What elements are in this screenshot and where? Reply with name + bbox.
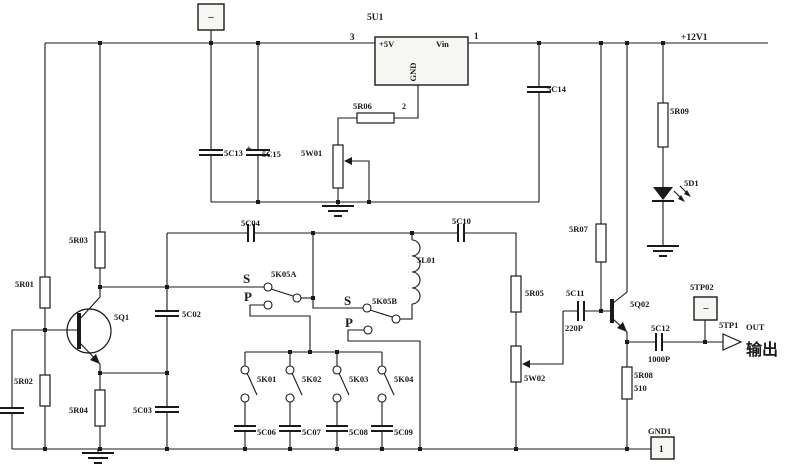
junction-dot	[599, 41, 603, 45]
junction-dot	[625, 41, 629, 45]
cap-5C03	[155, 373, 179, 449]
junction-dot	[288, 447, 292, 451]
label-5k05b-s: S	[344, 293, 351, 308]
junction-dot	[703, 340, 707, 344]
transistor-5Q1	[45, 287, 111, 373]
label-5r04: 5R04	[69, 405, 89, 415]
tp02-minus: −	[703, 303, 709, 315]
junction-dot	[367, 200, 371, 204]
junction-dot	[418, 447, 422, 451]
label-5k05a: 5K05A	[271, 269, 297, 279]
resistor-5R09	[658, 43, 668, 187]
label-shuchu: 输出	[746, 340, 778, 359]
junction-dot	[43, 447, 47, 451]
label-5c10: 5C10	[452, 216, 471, 226]
label-pin2: 2	[402, 102, 406, 111]
label-5u1: 5U1	[367, 13, 384, 23]
schematic-canvas: 5U131+5VVinGND25R065W015C13+5C155C14+12V…	[0, 0, 785, 471]
label-5c06: 5C06	[257, 427, 276, 437]
label-gnd1-pin: 1	[659, 444, 664, 454]
junction-dot	[209, 41, 213, 45]
label-pin3: 3	[350, 32, 355, 42]
regulator-5U1	[338, 37, 468, 145]
junction-dot	[165, 447, 169, 451]
junction-dot	[308, 350, 312, 354]
resistor-5R04	[95, 373, 105, 449]
label-5k01: 5K01	[257, 374, 276, 384]
schematic-page: 5U131+5VVinGND25R065W015C13+5C155C14+12V…	[0, 0, 785, 471]
resistor-5R01	[40, 43, 50, 375]
label-5c15: 5C15	[262, 149, 281, 159]
junction-dot	[625, 340, 629, 344]
led-5D1	[652, 186, 691, 242]
junction-dot	[98, 41, 102, 45]
label-out: OUT	[746, 322, 765, 332]
label-5l01: 5L01	[417, 255, 435, 265]
label-5r07: 5R07	[569, 224, 589, 234]
junction-dot	[335, 350, 339, 354]
label-5r01: 5R01	[15, 279, 34, 289]
label-5c09: 5C09	[394, 427, 413, 437]
ground-symbol-led	[647, 242, 679, 256]
label-5c12: 5C12	[651, 323, 670, 333]
junction-dot	[311, 296, 315, 300]
junction-dot	[335, 447, 339, 451]
label-5c07: 5C07	[302, 427, 322, 437]
junction-dot	[256, 200, 260, 204]
label-5d1: 5D1	[684, 178, 699, 188]
label-5w02: 5W02	[524, 373, 545, 383]
cap-5C02	[155, 233, 179, 373]
label-510: 510	[634, 383, 647, 393]
label-5c13: 5C13	[224, 148, 243, 158]
tp-top-minus: −	[208, 12, 214, 24]
label-5k02: 5K02	[302, 374, 321, 384]
label-5r06: 5R06	[353, 101, 372, 111]
label-1000p: 1000P	[648, 354, 670, 364]
ground-symbol-main	[82, 449, 114, 463]
junction-dots	[43, 41, 707, 451]
switch-5K03	[326, 352, 349, 449]
label-5r09: 5R09	[670, 106, 689, 116]
label-220p: 220P	[565, 323, 583, 333]
junction-dot	[98, 447, 102, 451]
inductor-5L01	[400, 233, 420, 319]
cap-5C15	[246, 43, 270, 202]
testpoint-minus-box	[198, 4, 224, 202]
label-5k05b-p: P	[345, 315, 353, 330]
junction-dot	[336, 200, 340, 204]
cap-5C14	[527, 43, 551, 202]
label-5r02: 5R02	[14, 376, 33, 386]
junction-dot	[599, 309, 603, 313]
cap-unlabeled-left	[0, 330, 45, 449]
label-5c03: 5C03	[133, 405, 152, 415]
label-5tp1: 5TP1	[719, 320, 738, 330]
label-pin1: 1	[474, 31, 479, 41]
ground-symbol-regulator	[322, 202, 354, 216]
junction-dot	[43, 328, 47, 332]
resistor-5R07	[596, 43, 606, 311]
label-vin: Vin	[436, 39, 449, 49]
cap-5C12	[627, 333, 723, 351]
junction-dot	[380, 447, 384, 451]
label-plus5v: +5V	[379, 39, 395, 49]
resistor-5R06	[357, 113, 394, 123]
switch-5K01	[234, 352, 257, 449]
label-5c08: 5C08	[349, 427, 368, 437]
label-5c04: 5C04	[241, 218, 261, 228]
junction-dot	[311, 231, 315, 235]
junction-dot	[661, 41, 665, 45]
cap-5C04	[167, 224, 412, 242]
label-5r08: 5R08	[634, 370, 653, 380]
label-5k03: 5K03	[349, 374, 368, 384]
junction-dot	[625, 447, 629, 451]
junction-dot	[243, 447, 247, 451]
junction-dot	[537, 41, 541, 45]
wire-sp-bus	[313, 233, 363, 308]
label-5c14: 5C14	[547, 84, 567, 94]
resistor-5R02	[40, 375, 50, 449]
output-port	[723, 334, 741, 350]
cap-5C10	[412, 224, 516, 276]
junction-dot	[514, 447, 518, 451]
label-5k05b: 5K05B	[372, 296, 397, 306]
label-5r05: 5R05	[525, 288, 544, 298]
resistor-5R05	[511, 276, 521, 346]
label-5c15-plus: +	[246, 144, 252, 155]
label-5k05a-s: S	[243, 271, 250, 286]
junction-dot	[165, 371, 169, 375]
label-5k04: 5K04	[394, 374, 414, 384]
label-plus12v1: +12V1	[681, 33, 708, 43]
label-5q02: 5Q02	[630, 299, 649, 309]
junction-dot	[165, 285, 169, 289]
switch-5K05A	[250, 283, 313, 352]
label-5r03: 5R03	[69, 235, 88, 245]
label-5k05a-p: P	[244, 289, 252, 304]
switch-5K04	[371, 352, 394, 449]
label-5c02: 5C02	[182, 309, 201, 319]
junction-dot	[410, 231, 414, 235]
label-5tp02: 5TP02	[690, 282, 714, 292]
cap-5C13	[199, 150, 223, 155]
pot-5W01	[333, 145, 369, 202]
resistor-5R03	[95, 43, 105, 287]
label-5c11: 5C11	[566, 288, 584, 298]
junction-dot	[288, 350, 292, 354]
junction-dot	[98, 285, 102, 289]
label-gnd1: GND1	[648, 426, 671, 436]
transistor-5Q02	[612, 43, 627, 342]
label-5q1: 5Q1	[114, 312, 129, 322]
resistor-5R08	[622, 342, 632, 449]
label-5w01: 5W01	[301, 148, 322, 158]
junction-dot	[98, 371, 102, 375]
switch-5K02	[279, 352, 302, 449]
junction-dot	[256, 41, 260, 45]
label-gnd-pin: GND	[408, 63, 418, 82]
